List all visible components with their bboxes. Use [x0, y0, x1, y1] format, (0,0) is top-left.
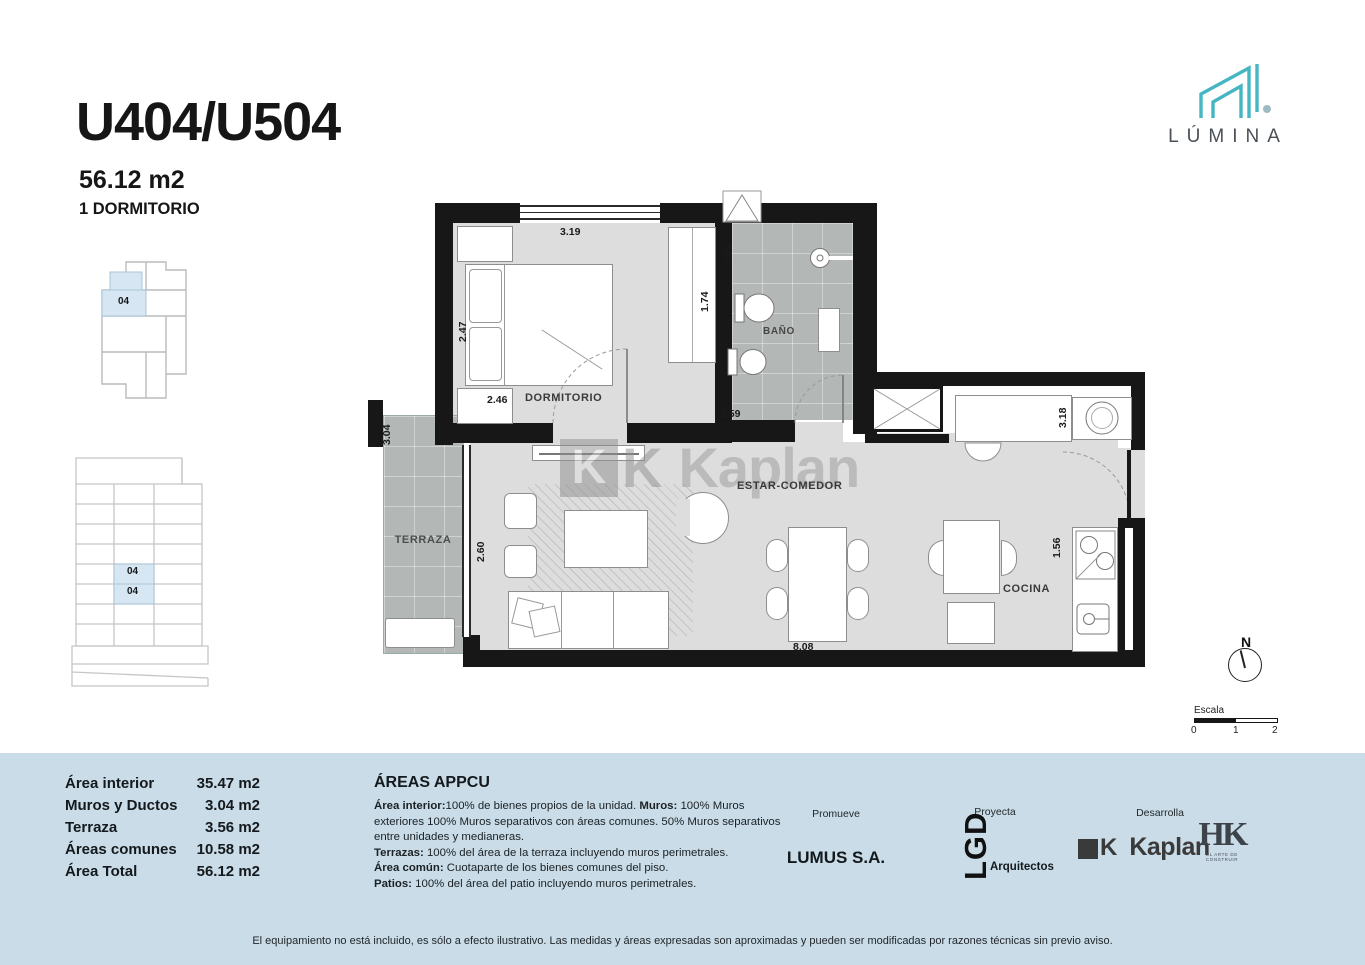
dim-bath-height: 2.53 [723, 245, 735, 265]
scale-bar-filled [1195, 719, 1236, 722]
label-terraza: TERRAZA [385, 534, 461, 546]
dim-closet: 1.74 [699, 292, 711, 312]
table-row: Área Total 56.12 m2 [65, 860, 260, 882]
scale-tick-1: 1 [1233, 725, 1239, 736]
appcu-term: Patios: [374, 878, 412, 890]
table-row: Terraza 3.56 m2 [65, 816, 260, 838]
appcu-block: ÁREAS APPCU Área interior:100% de bienes… [374, 774, 784, 893]
table-row: Áreas comunes 10.58 m2 [65, 838, 260, 860]
lgd-sub: Arquitectos [990, 861, 1054, 873]
dim-kitchen: 1.56 [1051, 538, 1063, 558]
promueve-label: Promueve [786, 808, 886, 820]
area-label: Muros y Ductos [65, 797, 178, 814]
lgd-logo: LGD [958, 812, 994, 880]
area-label: Terraza [65, 819, 117, 836]
keyplan-elev-unit-1: 04 [127, 566, 138, 577]
label-dormitorio: DORMITORIO [525, 392, 602, 404]
kaplan-square-icon [1078, 839, 1098, 859]
kaplan-logo: K Kaplan [1078, 833, 1210, 862]
appcu-title: ÁREAS APPCU [374, 774, 784, 792]
area-label: Áreas comunes [65, 841, 177, 858]
kaplan-watermark-k-icon: K [622, 435, 662, 500]
closet-door-fan [965, 443, 1001, 461]
scale-bar-empty [1236, 719, 1277, 722]
appcu-text: 100% del área de la terraza incluyendo m… [424, 847, 729, 859]
keyplan-floor: 04 [88, 256, 203, 406]
label-estar-comedor: ESTAR-COMEDOR [737, 480, 842, 492]
unit-type: 1 DORMITORIO [79, 200, 200, 219]
appcu-term: Área común: [374, 862, 444, 874]
appcu-term: Muros: [639, 800, 677, 812]
scale-label: Escala [1194, 705, 1224, 716]
toilet-icon [744, 294, 774, 322]
area-label: Área interior [65, 775, 154, 792]
plan-sheet: U404/U504 56.12 m2 1 DORMITORIO LÚMINA 0… [0, 0, 1365, 965]
bedroom-door-arc [553, 349, 627, 423]
appcu-text: Cuotaparte de los bienes comunes del pis… [444, 862, 669, 874]
bath-door-arc [795, 375, 843, 423]
label-bano: BAÑO [763, 326, 795, 337]
dim-bedroom-width: 3.19 [560, 226, 580, 238]
table-row: Muros y Ductos 3.04 m2 [65, 794, 260, 816]
dim-living-window: 2.60 [475, 542, 487, 562]
scale-tick-2: 2 [1272, 725, 1278, 736]
hk-tagline: EL ARTE DE CONSTRUIR [1192, 852, 1252, 862]
dim-bath-width: 1.59 [720, 408, 740, 420]
keyplan-elevation-drawing [62, 448, 222, 693]
dim-laundry: 3.18 [1057, 408, 1069, 428]
floor-plan: K K Kaplan 3.19 2.47 1.74 2.46 2.53 1.59… [365, 190, 1165, 690]
shower-icon [811, 249, 830, 268]
dim-living-width: 8.08 [793, 641, 813, 653]
keyplan-elevation: 04 04 [62, 448, 222, 693]
appcu-term: Terrazas: [374, 847, 424, 859]
keyplan-floor-unit: 04 [118, 296, 129, 307]
area-value: 35.47 m2 [197, 775, 260, 792]
kaplan-k-icon: K [1100, 834, 1117, 862]
keyplan-floor-drawing [88, 256, 203, 406]
keyplan-elev-unit-2: 04 [127, 586, 138, 597]
hk-logo: HK EL ARTE DE CONSTRUIR [1192, 818, 1252, 862]
areas-table: Área interior 35.47 m2 Muros y Ductos 3.… [65, 772, 260, 882]
scale-bar-icon [1194, 718, 1278, 723]
entry-door-leaf [1127, 450, 1131, 518]
disclaimer-text: El equipamiento no está incluido, es sól… [0, 935, 1365, 947]
appcu-body: Área interior:100% de bienes propios de … [374, 799, 784, 893]
appcu-text: 100% del área del patio incluyendo muros… [412, 878, 696, 890]
unit-area: 56.12 m2 [79, 166, 185, 195]
washer-drum-icon [1086, 402, 1118, 434]
area-value: 56.12 m2 [197, 863, 260, 880]
dim-bedroom-height: 2.47 [457, 322, 469, 342]
appcu-text: 100% de bienes propios de la unidad. [446, 800, 640, 812]
area-value: 3.56 m2 [205, 819, 260, 836]
toilet-tank [735, 294, 744, 322]
dim-bedroom-bottom: 2.46 [487, 394, 507, 406]
scale-tick-0: 0 [1191, 725, 1197, 736]
bidet-tank [728, 349, 737, 375]
dim-terrace-height: 3.04 [381, 425, 393, 445]
area-value: 3.04 m2 [205, 797, 260, 814]
unit-title: U404/U504 [76, 94, 340, 150]
entry-door-arc [1063, 452, 1130, 519]
appcu-term: Área interior: [374, 800, 446, 812]
area-value: 10.58 m2 [197, 841, 260, 858]
promueve-company: LUMUS S.A. [766, 848, 906, 868]
kaplan-watermark-square-icon: K [560, 439, 618, 497]
lumina-wordmark: LÚMINA [1156, 126, 1300, 148]
area-label: Área Total [65, 863, 137, 880]
duct-x-icon [874, 389, 940, 429]
bidet-icon [740, 350, 766, 375]
stove [1076, 531, 1115, 579]
table-row: Área interior 35.47 m2 [65, 772, 260, 794]
lumina-logo-icon [1191, 60, 1287, 122]
label-cocina: COCINA [1003, 583, 1050, 595]
hk-monogram: HK [1192, 818, 1252, 852]
